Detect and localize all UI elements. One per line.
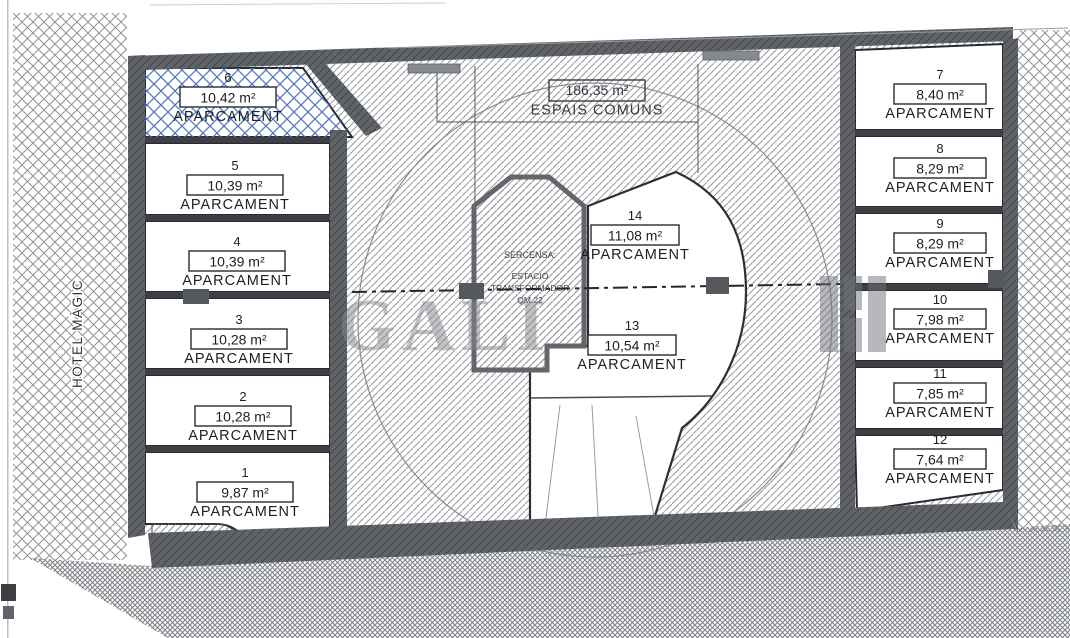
- stall-divider: [145, 369, 347, 375]
- stall-area: 8,29 m²: [916, 236, 964, 252]
- stall-area: 8,29 m²: [916, 161, 964, 177]
- stall-word: APARCAMENT: [577, 357, 687, 373]
- transformer-line-2: ESTACIÓ: [512, 271, 549, 281]
- stall-word: APARCAMENT: [885, 405, 995, 421]
- stall-number: 13: [625, 318, 639, 333]
- stall-word: APARCAMENT: [885, 255, 995, 271]
- stall-divider: [145, 137, 347, 143]
- stall-divider: [145, 215, 347, 221]
- stall-area: 7,85 m²: [916, 386, 964, 402]
- stall-word: APARCAMENT: [885, 180, 995, 196]
- stall-area: 11,08 m²: [608, 228, 663, 244]
- right-wall: [1003, 38, 1018, 532]
- stall-number: 10: [933, 292, 947, 307]
- stall-divider: [849, 207, 1003, 213]
- stall-number: 12: [933, 432, 947, 447]
- stall-area: 7,64 m²: [916, 452, 964, 468]
- floor-plan-drawing: 186,35 m² ESPAIS COMUNS SERCENSA: ESTACI…: [0, 0, 1070, 638]
- stall-word: APARCAMENT: [180, 197, 290, 213]
- pillar: [183, 289, 209, 304]
- left-wall: [128, 55, 145, 538]
- scanned-floor-plan-page: 186,35 m² ESPAIS COMUNS SERCENSA: ESTACI…: [0, 0, 1070, 638]
- stall-area: 9,87 m²: [221, 485, 269, 501]
- stall-divider: [849, 130, 1003, 136]
- stall-number: 5: [231, 158, 238, 173]
- stall-number: 4: [233, 234, 240, 249]
- page-edge-line: [7, 0, 9, 638]
- stall-area: 10,39 m²: [209, 254, 265, 270]
- stall-area: 10,28 m²: [215, 409, 271, 425]
- adjacent-site-hatch-right: [1018, 30, 1070, 532]
- stall-word: APARCAMENT: [184, 351, 294, 367]
- stall-number: 9: [936, 216, 943, 231]
- stall-word: APARCAMENT: [188, 428, 298, 444]
- top-wall-opening: [703, 51, 759, 60]
- stall-number: 14: [628, 208, 642, 223]
- stall-word: APARCAMENT: [182, 273, 292, 289]
- stall-divider: [849, 361, 1003, 367]
- stall-area: 10,39 m²: [207, 178, 263, 194]
- stall-divider: [145, 446, 347, 452]
- scan-artifact-line: [150, 3, 445, 5]
- hotel-magic-label: HOTEL MÀGIC: [70, 279, 85, 388]
- watermark-text: GALI: [338, 285, 551, 367]
- stall-word: APARCAMENT: [885, 471, 995, 487]
- pillar: [706, 277, 729, 294]
- stall-area: 10,28 m²: [211, 332, 267, 348]
- top-wall-opening: [408, 64, 460, 73]
- stall-number: 2: [239, 389, 246, 404]
- common-area-name: ESPAIS COMUNS: [531, 103, 664, 119]
- stall-word: APARCAMENT: [885, 106, 995, 122]
- stall-area: 7,98 m²: [916, 312, 964, 328]
- stall-number: 7: [936, 67, 943, 82]
- stall-number: 8: [936, 141, 943, 156]
- scan-mark-dark-2: [3, 606, 14, 619]
- stall-word: APARCAMENT: [173, 109, 283, 125]
- stall-number: 6: [224, 70, 231, 85]
- stall-number: 1: [241, 465, 248, 480]
- stall-area: 10,42 m²: [200, 90, 256, 106]
- stall-number: 11: [933, 366, 947, 381]
- scan-mark-dark: [1, 584, 16, 601]
- stall-word: APARCAMENT: [885, 331, 995, 347]
- transformer-line-1: SERCENSA:: [504, 250, 556, 260]
- stall-word: APARCAMENT: [190, 504, 300, 520]
- common-area-value: 186,35 m²: [565, 82, 628, 98]
- stall-number: 3: [235, 312, 242, 327]
- stall-area: 8,40 m²: [916, 87, 964, 103]
- stall-word: APARCAMENT: [580, 247, 690, 263]
- stall-divider: [145, 292, 347, 298]
- stall-divider: [849, 429, 1003, 435]
- stall-area: 10,54 m²: [604, 338, 660, 354]
